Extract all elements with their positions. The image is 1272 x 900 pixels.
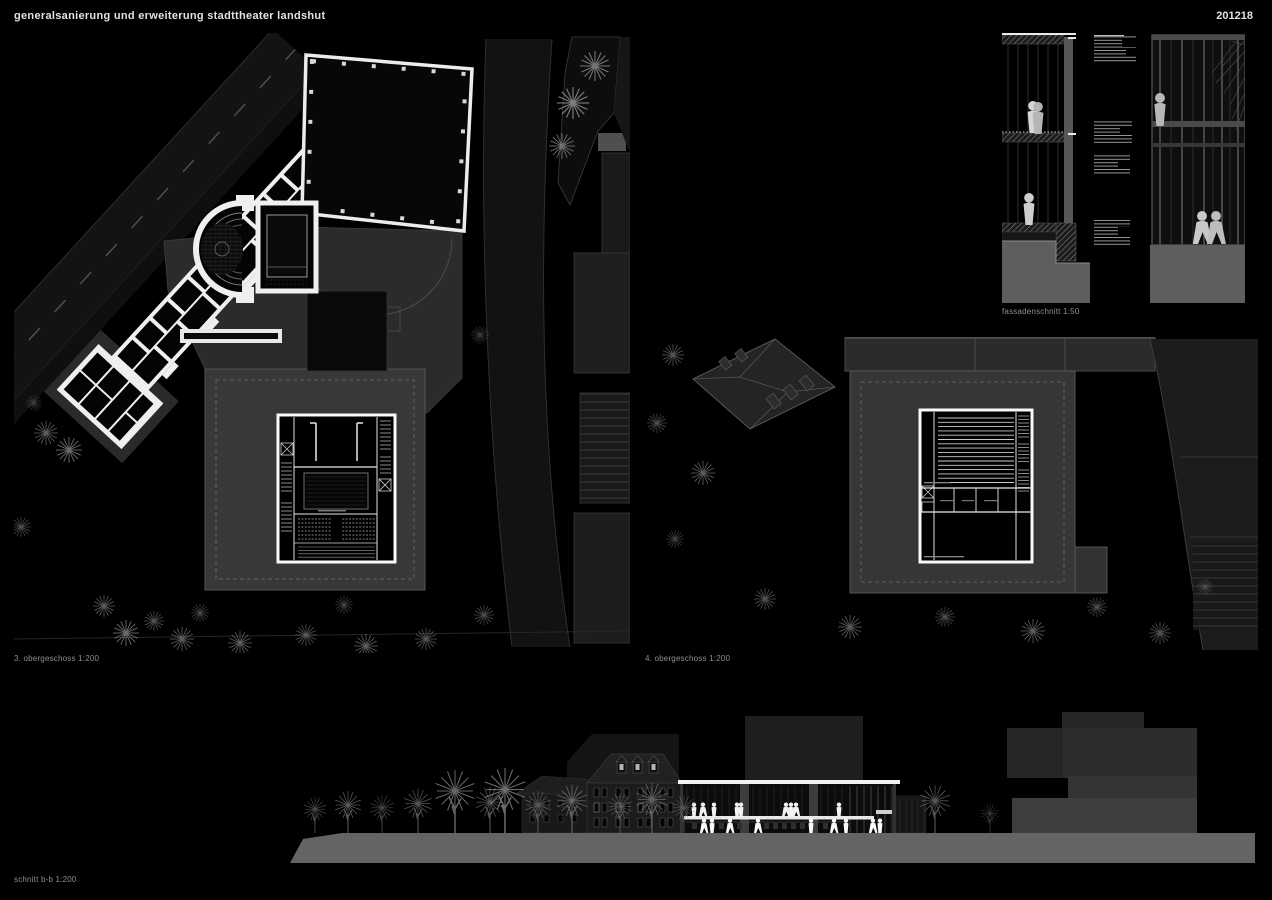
board-title: generalsanierung und erweiterung stadtth… <box>14 10 325 22</box>
facade-section-drawing <box>1002 33 1245 303</box>
section-bb-drawing <box>290 700 1265 868</box>
gallery-strip <box>180 329 282 343</box>
east-buildings <box>1150 339 1258 650</box>
great-hall <box>302 55 472 231</box>
caption-section: schnitt b-b 1:200 <box>14 875 77 884</box>
presentation-board: generalsanierung und erweiterung stadtth… <box>0 0 1272 900</box>
annotation-text-blocks <box>1094 35 1136 245</box>
caption-facade: fassadenschnitt 1:50 <box>1002 307 1079 316</box>
new-building-plan-4og <box>920 410 1032 562</box>
new-building-plan-3og <box>278 415 395 562</box>
street-band <box>845 337 1155 371</box>
ground-band <box>290 833 1255 863</box>
context-building-right <box>1007 712 1197 833</box>
fly-tower <box>745 716 863 784</box>
project-code: 201218 <box>1216 10 1253 22</box>
plan-4og-drawing <box>645 337 1258 652</box>
new-theater-section <box>678 780 926 833</box>
facade-section <box>1002 33 1090 303</box>
dark-building-mass <box>307 291 387 371</box>
caption-plan4: 4. obergeschoss 1:200 <box>645 654 730 663</box>
dormers <box>616 756 659 773</box>
facade-elevation <box>1150 35 1245 303</box>
hip-roof-building <box>693 339 835 429</box>
caption-plan3: 3. obergeschoss 1:200 <box>14 654 99 663</box>
plan-3og-drawing <box>14 33 630 653</box>
stage-box <box>258 203 316 291</box>
